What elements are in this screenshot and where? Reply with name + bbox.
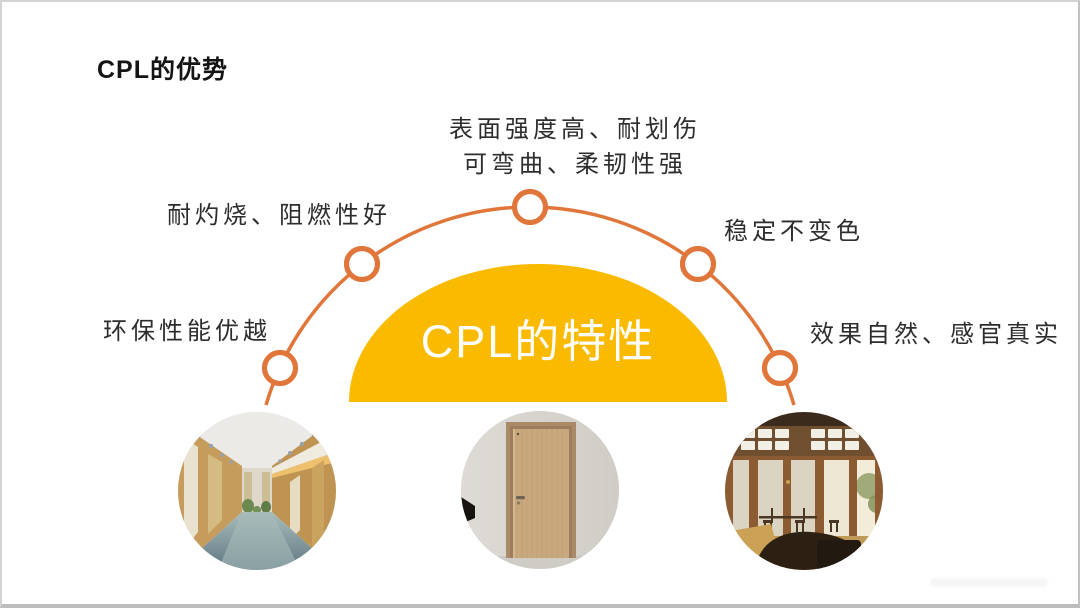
hallway-photo-art bbox=[178, 412, 336, 570]
arc-node-left-lower bbox=[265, 353, 296, 384]
label-left-upper: 耐灼烧、阻燃性好 bbox=[167, 195, 391, 230]
label-top: 表面强度高、耐划伤 可弯曲、柔韧性强 bbox=[390, 112, 760, 182]
arc-node-right-upper bbox=[683, 249, 714, 280]
wood-door-photo bbox=[461, 411, 619, 569]
label-right-lower: 效果自然、感官真实 bbox=[810, 314, 1062, 349]
slide: CPL的优势 CPL的特性 表面强度高、耐划伤 可弯曲、柔韧性强 耐灼烧、阻燃性… bbox=[0, 0, 1080, 608]
arc-node-top bbox=[515, 192, 546, 223]
dome-label: CPL的特性 bbox=[421, 305, 656, 370]
glass-doors-photo-art bbox=[725, 412, 883, 570]
hallway-photo bbox=[178, 412, 336, 570]
wood-door-photo-art bbox=[461, 411, 619, 569]
label-top-line1: 表面强度高、耐划伤 bbox=[390, 112, 760, 147]
label-left-lower: 环保性能优越 bbox=[103, 311, 271, 346]
glass-doors-photo bbox=[725, 412, 883, 570]
watermark-faint bbox=[930, 578, 1048, 587]
label-right-upper: 稳定不变色 bbox=[724, 211, 864, 246]
label-top-line2: 可弯曲、柔韧性强 bbox=[390, 147, 760, 182]
arc-node-right-lower bbox=[765, 353, 796, 384]
arc-node-left-upper bbox=[347, 249, 378, 280]
